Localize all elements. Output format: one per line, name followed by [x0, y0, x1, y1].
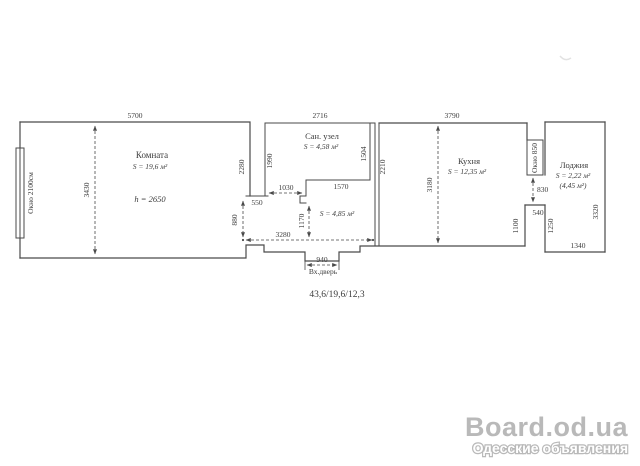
dim-label-2716: 2716: [313, 111, 328, 120]
dim-junction-dot-left: [242, 239, 244, 241]
dim-label-540: 540: [532, 208, 544, 217]
dim-label-1340: 1340: [571, 241, 586, 250]
dim-label-3430: 3430: [82, 182, 91, 197]
dim-label-3180: 3180: [425, 177, 434, 192]
wall-pilaster: [300, 180, 306, 203]
living-window-label: Окно 2100см: [26, 172, 35, 214]
dim-label-1990: 1990: [265, 153, 274, 168]
dim-label-3280: 3280: [276, 230, 291, 239]
loggia-name: Лоджия: [560, 160, 588, 170]
living-room-height: h = 2650: [134, 194, 166, 204]
dim-label-3790: 3790: [445, 111, 460, 120]
loggia-area: S = 2,22 м²: [556, 171, 591, 180]
dim-label-1504: 1504: [359, 146, 368, 161]
kitchen-area: S = 12,35 м²: [448, 167, 487, 176]
dim-label-1100: 1100: [511, 218, 520, 233]
kitchen-name: Кухня: [458, 156, 480, 166]
bathroom-name: Сан. узел: [305, 131, 340, 141]
dim-label-1030: 1030: [279, 183, 294, 192]
wall-bottom-profile: [20, 245, 525, 261]
living-room-name: Комната: [136, 150, 168, 160]
scan-artifact: [560, 56, 571, 60]
dim-label-550: 550: [251, 198, 263, 207]
hallway-area: S = 4,85 м²: [320, 209, 355, 218]
dim-label-2210: 2210: [378, 159, 387, 174]
dim-label-3320: 3320: [591, 204, 600, 219]
dim-label-2280: 2280: [237, 159, 246, 174]
dim-label-1570: 1570: [334, 182, 349, 191]
dim-label-5700: 5700: [128, 111, 143, 120]
living-room-area: S = 19,6 м²: [133, 162, 168, 171]
dim-label-830: 830: [537, 185, 549, 194]
dim-label-1250: 1250: [546, 218, 555, 233]
watermark: Board.od.ua Одесские объявления: [465, 412, 628, 456]
entrance-door-label: Вх.дверь: [309, 267, 338, 276]
floor-plan-scan: 5700 2716 3790 550 1030 1570 3280 940 83…: [0, 0, 640, 466]
bathroom-area: S = 4,58 м²: [304, 142, 339, 151]
dim-label-880: 880: [230, 214, 239, 226]
dim-junction-dot-right: [372, 239, 374, 241]
dim-label-1170: 1170: [297, 213, 306, 228]
floor-plan-drawing: 5700 2716 3790 550 1030 1570 3280 940 83…: [0, 0, 640, 466]
dimension-labels-rotated: 3430 2280 880 1990 1504 1170 2210 3180 1…: [26, 143, 600, 234]
watermark-tagline: Одесские объявления: [473, 440, 628, 456]
kitchen-window-label: Окно 850: [530, 143, 539, 173]
dim-label-940: 940: [316, 255, 328, 264]
apartment-summary: 43,6/19,6/12,3: [309, 290, 364, 300]
watermark-site: Board.od.ua: [465, 412, 628, 442]
dimension-labels: 5700 2716 3790 550 1030 1570 3280 940 83…: [128, 111, 586, 264]
loggia-area-alt: (4,45 м²): [559, 181, 587, 190]
